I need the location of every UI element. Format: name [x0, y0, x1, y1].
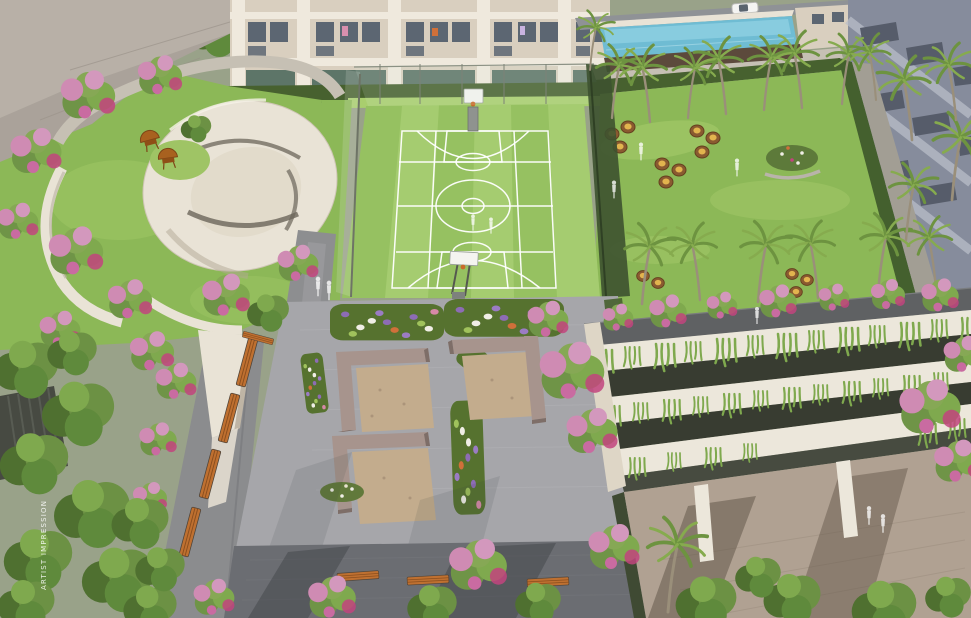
- car: [732, 2, 759, 14]
- sports-court: [306, 63, 630, 310]
- flower-bed: [330, 304, 444, 340]
- artist-impression-render: ARTIST IMPRESSION: [0, 0, 971, 618]
- landscape-scene: ARTIST IMPRESSION: [0, 0, 971, 618]
- watermark-text: ARTIST IMPRESSION: [40, 500, 48, 590]
- seat-wall-a: [336, 348, 434, 432]
- pocket-lawn: [150, 140, 210, 180]
